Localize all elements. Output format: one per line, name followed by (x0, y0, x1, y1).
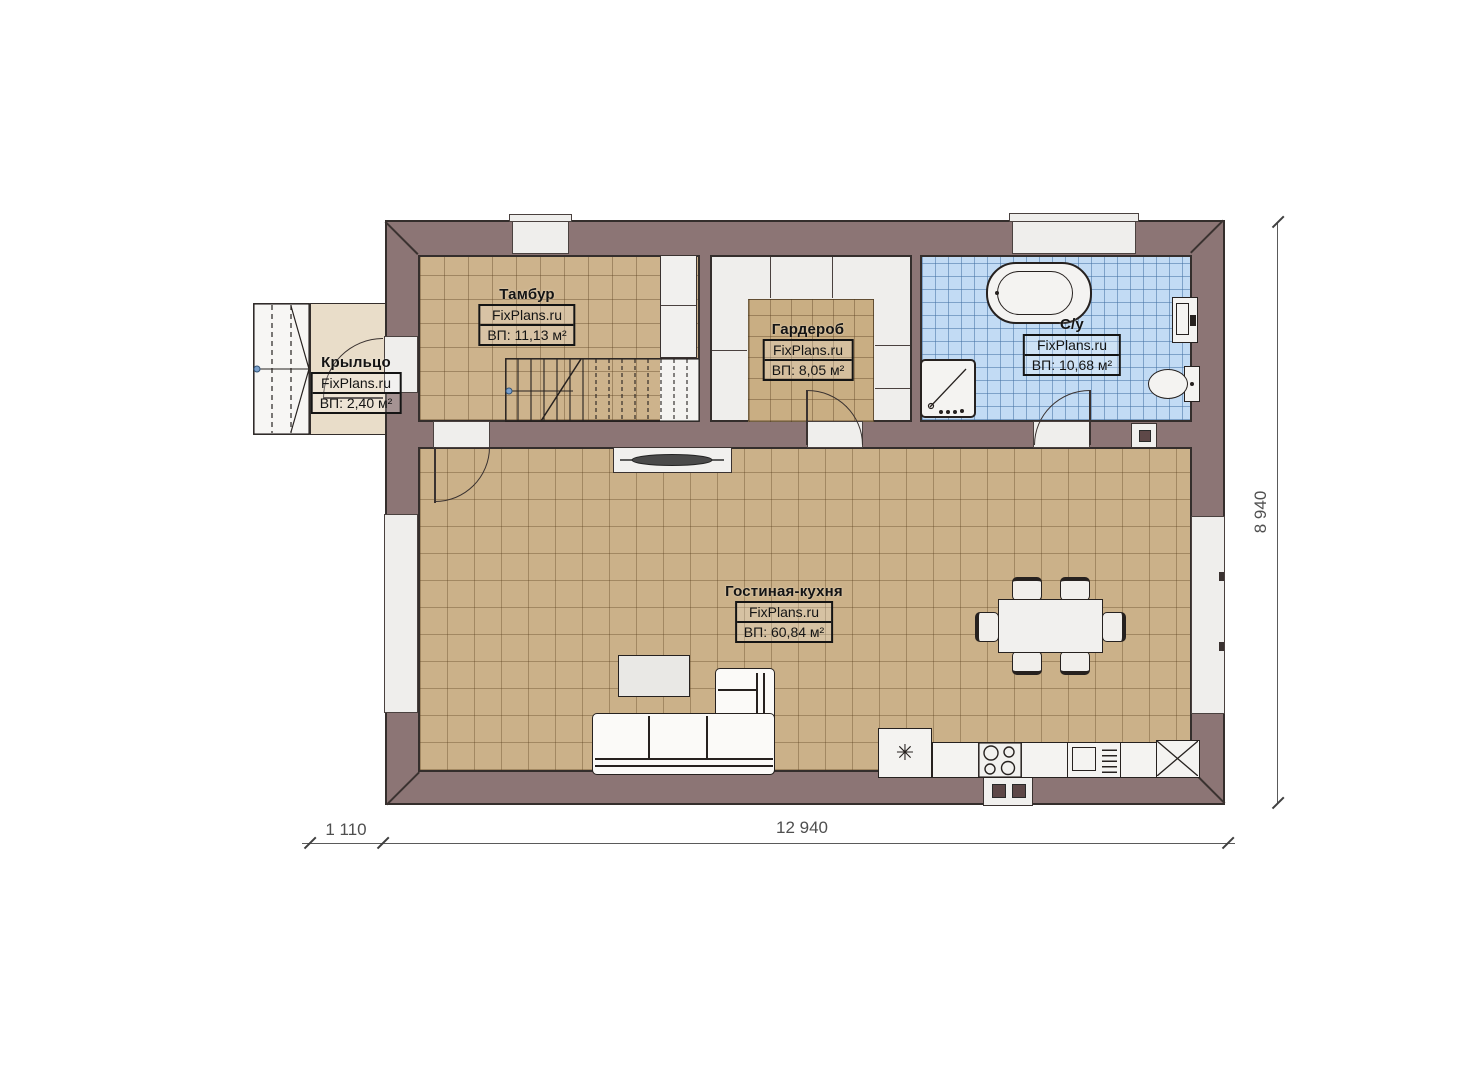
window-left-living (384, 514, 418, 713)
closet-divider (875, 345, 910, 346)
sofa-back-line (595, 758, 773, 760)
room-info-box: FixPlans.ru ВП: 11,13 м² (478, 304, 575, 346)
room-info-box: FixPlans.ru ВП: 60,84 м² (735, 601, 833, 643)
room-name: Крыльцо (311, 354, 402, 371)
oven-door (1072, 747, 1096, 771)
room-info-box: FixPlans.ru ВП: 10,68 м² (1023, 334, 1121, 376)
closet-divider (770, 257, 771, 298)
chimney-duct (1012, 784, 1026, 798)
dining-chair (975, 612, 999, 642)
window-top-vestibule (512, 221, 569, 254)
window-mullion (1219, 642, 1224, 651)
bathtub-drain (995, 291, 999, 295)
oven (1067, 742, 1121, 778)
chimney-duct (992, 784, 1006, 798)
bathtub (986, 262, 1092, 324)
room-area: ВП: 11,13 м² (480, 326, 573, 344)
vestibule-living-door-opening (433, 421, 490, 448)
room-area: ВП: 8,05 м² (765, 361, 852, 379)
sink-cross (1157, 741, 1198, 776)
window-right-living (1191, 516, 1225, 714)
room-name: Тамбур (478, 286, 575, 303)
label-porch: Крыльцо FixPlans.ru ВП: 2,40 м² (311, 354, 402, 414)
brand-text: FixPlans.ru (737, 603, 831, 623)
washbasin-bowl (1176, 303, 1189, 335)
wall-vent (1131, 423, 1157, 448)
bathroom-door-leaf (1089, 390, 1091, 445)
room-info-box: FixPlans.ru ВП: 8,05 м² (763, 339, 854, 381)
closet-divider (875, 388, 910, 389)
dimension-porch-width: 1 110 (325, 820, 366, 840)
label-vestibule: Тамбур FixPlans.ru ВП: 11,13 м² (478, 286, 575, 346)
staircase (505, 358, 700, 422)
label-wardrobe: Гардероб FixPlans.ru ВП: 8,05 м² (763, 321, 854, 381)
stove (978, 742, 1022, 778)
snowflake-icon: ✳ (896, 740, 914, 765)
tv (614, 448, 730, 471)
label-bathroom: С/у FixPlans.ru ВП: 10,68 м² (1023, 316, 1121, 376)
sofa-back-line (595, 765, 773, 767)
sofa-seat-divider (706, 716, 708, 758)
room-area: ВП: 2,40 м² (313, 394, 400, 412)
brand-text: FixPlans.ru (313, 374, 400, 394)
room-name: С/у (1023, 316, 1121, 333)
dining-chair (1012, 577, 1042, 601)
sofa-armrest-line (718, 689, 756, 691)
brand-text: FixPlans.ru (765, 341, 852, 361)
brand-text: FixPlans.ru (1025, 336, 1119, 356)
dining-chair (1060, 577, 1090, 601)
oven-vents (1102, 747, 1117, 773)
room-info-box: FixPlans.ru ВП: 2,40 м² (311, 372, 402, 414)
sofa-main-section (592, 713, 775, 775)
dimension-house-depth: 8 940 (1251, 491, 1271, 534)
fridge: ✳ (878, 728, 932, 778)
coffee-table (618, 655, 690, 697)
washbasin (1172, 297, 1198, 343)
label-living-kitchen: Гостиная-кухня FixPlans.ru ВП: 60,84 м² (725, 583, 843, 643)
wardrobe-door-leaf (806, 390, 808, 445)
chimney-block (983, 776, 1033, 806)
room-name: Гардероб (763, 321, 854, 338)
closet-divider (832, 257, 833, 298)
porch-steps (253, 303, 310, 435)
room-name: Гостиная-кухня (725, 583, 843, 600)
dining-chair (1060, 651, 1090, 675)
tv-stand (613, 447, 732, 473)
closet-divider (712, 350, 747, 351)
washbasin-tap (1190, 315, 1196, 326)
floor-plan: ✳ Тамбур FixPlans.ru ВП: 11,13 м² Гардер… (0, 0, 1473, 1080)
toilet-bowl (1148, 369, 1188, 399)
sofa-seat-divider (648, 716, 650, 758)
bathtub-basin (997, 271, 1073, 315)
kitchen-sink (1156, 740, 1200, 778)
vent-duct (1139, 430, 1151, 442)
dimension-house-width: 12 940 (776, 818, 828, 838)
shower-tray (920, 359, 976, 418)
closet-divider (661, 305, 696, 306)
toilet-flush (1190, 382, 1194, 386)
dimension-line-right (1277, 222, 1278, 803)
dimension-line-bottom (302, 843, 1235, 844)
room-area: ВП: 60,84 м² (737, 623, 831, 641)
dining-chair (1102, 612, 1126, 642)
vestibule-closet (660, 255, 697, 358)
window-mullion (1219, 572, 1224, 581)
window-top-bathroom (1012, 221, 1136, 254)
dining-table (998, 599, 1103, 653)
brand-text: FixPlans.ru (480, 306, 573, 326)
dining-chair (1012, 651, 1042, 675)
vestibule-living-door-leaf (434, 447, 436, 503)
room-area: ВП: 10,68 м² (1025, 356, 1119, 374)
